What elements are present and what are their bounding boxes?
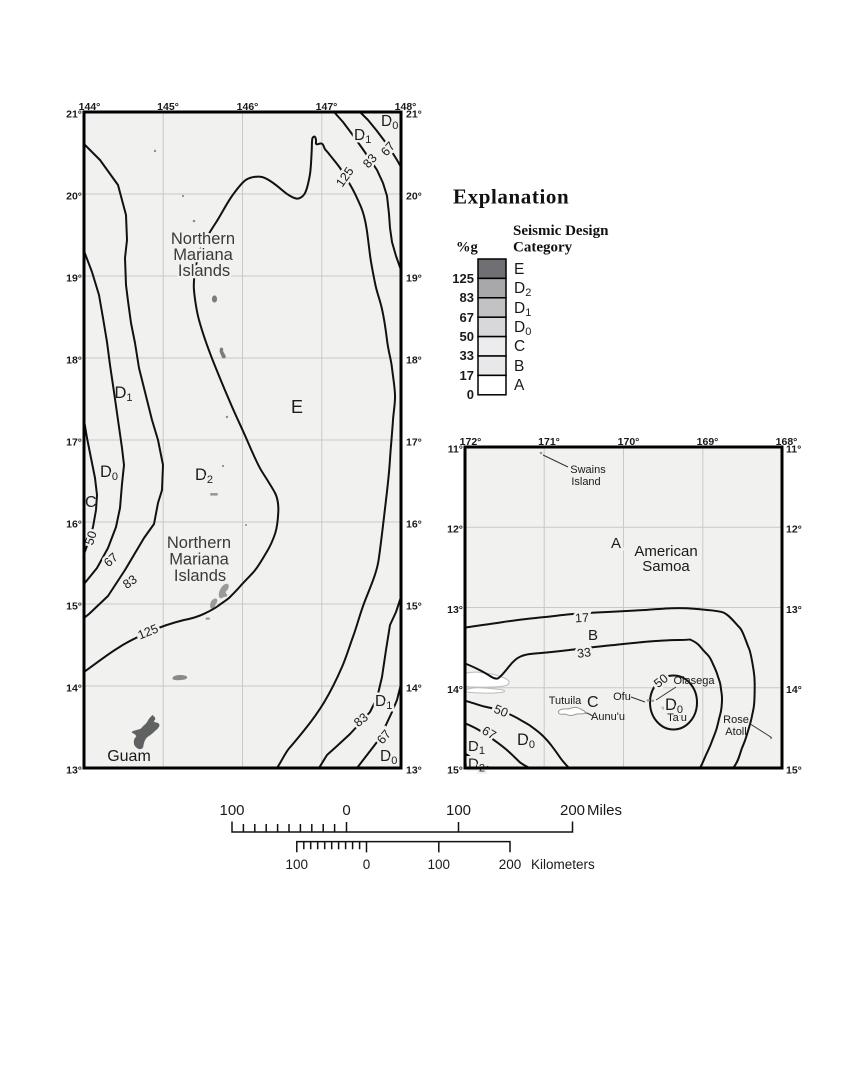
svg-text:Islands: Islands (178, 262, 230, 280)
svg-text:Explanation: Explanation (453, 185, 569, 209)
svg-text:17°: 17° (66, 437, 82, 449)
svg-text:14°: 14° (447, 684, 463, 696)
svg-text:A: A (611, 535, 621, 552)
svg-text:Swains: Swains (570, 464, 606, 476)
svg-text:200: 200 (499, 857, 522, 872)
svg-text:14°: 14° (66, 683, 82, 695)
svg-text:D0: D0 (514, 319, 531, 338)
svg-text:A: A (514, 377, 525, 394)
svg-text:20°: 20° (406, 191, 422, 203)
svg-text:100: 100 (286, 857, 309, 872)
svg-text:C: C (514, 338, 525, 355)
svg-text:17°: 17° (406, 437, 422, 449)
svg-text:Mariana: Mariana (169, 551, 229, 569)
svg-text:33: 33 (576, 645, 592, 661)
svg-text:19°: 19° (66, 273, 82, 285)
svg-text:B: B (514, 358, 524, 375)
svg-text:83: 83 (460, 290, 474, 305)
svg-text:17: 17 (460, 368, 474, 383)
svg-text:18°: 18° (406, 355, 422, 367)
svg-text:0: 0 (342, 802, 350, 819)
svg-text:%g: %g (456, 240, 479, 256)
svg-text:13°: 13° (406, 765, 422, 777)
svg-text:12°: 12° (786, 524, 802, 536)
svg-text:Guam: Guam (107, 748, 151, 765)
svg-text:145°: 145° (157, 101, 179, 113)
svg-text:14°: 14° (786, 684, 802, 696)
svg-text:Category: Category (513, 240, 573, 256)
svg-text:Northern: Northern (167, 534, 231, 552)
svg-text:11°: 11° (786, 444, 801, 456)
svg-text:15°: 15° (66, 601, 82, 613)
svg-text:B: B (588, 627, 598, 644)
svg-text:21°: 21° (66, 109, 82, 121)
svg-text:171°: 171° (538, 436, 560, 448)
svg-text:Atoll: Atoll (725, 726, 746, 738)
svg-text:50: 50 (460, 329, 474, 344)
svg-text:14°: 14° (406, 683, 422, 695)
svg-text:17: 17 (575, 611, 590, 626)
svg-text:C: C (85, 494, 97, 511)
svg-text:169°: 169° (697, 436, 719, 448)
svg-text:100: 100 (446, 802, 471, 819)
svg-text:D2: D2 (514, 280, 531, 299)
svg-text:Islands: Islands (174, 567, 226, 585)
svg-text:100: 100 (219, 802, 244, 819)
svg-text:100: 100 (428, 857, 451, 872)
svg-text:16°: 16° (406, 519, 422, 531)
svg-text:E: E (291, 397, 303, 417)
svg-text:200: 200 (560, 802, 585, 819)
svg-text:33: 33 (460, 348, 474, 363)
svg-text:Rose: Rose (723, 714, 749, 726)
svg-text:13°: 13° (447, 604, 463, 616)
svg-text:12°: 12° (447, 524, 463, 536)
svg-text:67: 67 (460, 310, 474, 325)
svg-text:146°: 146° (237, 101, 259, 113)
svg-text:21°: 21° (406, 109, 422, 121)
svg-text:Seismic Design: Seismic Design (513, 223, 609, 239)
svg-text:15°: 15° (786, 765, 802, 777)
svg-text:Island: Island (571, 476, 600, 488)
svg-text:20°: 20° (66, 191, 82, 203)
svg-text:Tutuila: Tutuila (549, 695, 582, 707)
svg-text:13°: 13° (66, 765, 82, 777)
svg-text:125: 125 (452, 271, 474, 286)
svg-text:18°: 18° (66, 355, 82, 367)
svg-text:Samoa: Samoa (642, 558, 690, 575)
svg-text:Aunu'u: Aunu'u (591, 711, 625, 723)
svg-text:E: E (514, 261, 524, 278)
svg-text:Kilometers: Kilometers (531, 857, 595, 872)
svg-text:147°: 147° (316, 101, 338, 113)
svg-text:13°: 13° (786, 604, 802, 616)
svg-text:170°: 170° (618, 436, 640, 448)
svg-text:Miles: Miles (587, 802, 622, 819)
svg-text:0: 0 (363, 857, 371, 872)
svg-text:15°: 15° (406, 601, 422, 613)
svg-text:19°: 19° (406, 273, 422, 285)
svg-text:Ofu: Ofu (613, 691, 631, 703)
svg-text:0: 0 (467, 387, 474, 402)
svg-text:Olasega: Olasega (674, 675, 716, 687)
svg-text:D1: D1 (514, 300, 531, 319)
svg-text:16°: 16° (66, 519, 82, 531)
svg-text:C: C (587, 694, 599, 711)
svg-text:11°: 11° (448, 444, 463, 456)
svg-text:15°: 15° (447, 765, 463, 777)
